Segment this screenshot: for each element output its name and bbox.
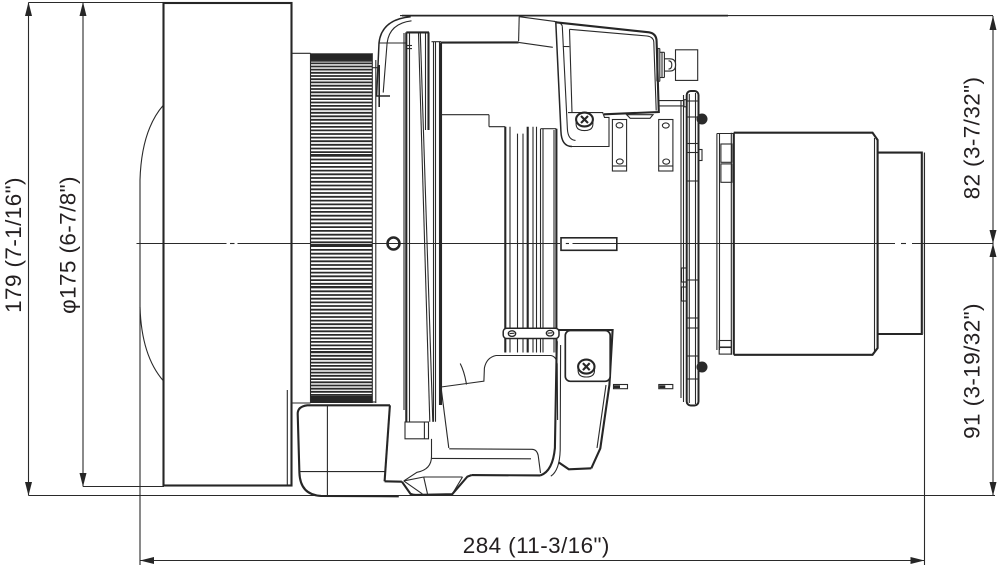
- svg-text:179 (7-1/16"): 179 (7-1/16"): [1, 177, 26, 313]
- svg-text:φ175 (6-7/8"): φ175 (6-7/8"): [56, 176, 81, 314]
- svg-text:91 (3-19/32"): 91 (3-19/32"): [960, 303, 985, 439]
- svg-text:82 (3-7/32"): 82 (3-7/32"): [960, 77, 985, 200]
- svg-text:284 (11-3/16"): 284 (11-3/16"): [463, 533, 610, 558]
